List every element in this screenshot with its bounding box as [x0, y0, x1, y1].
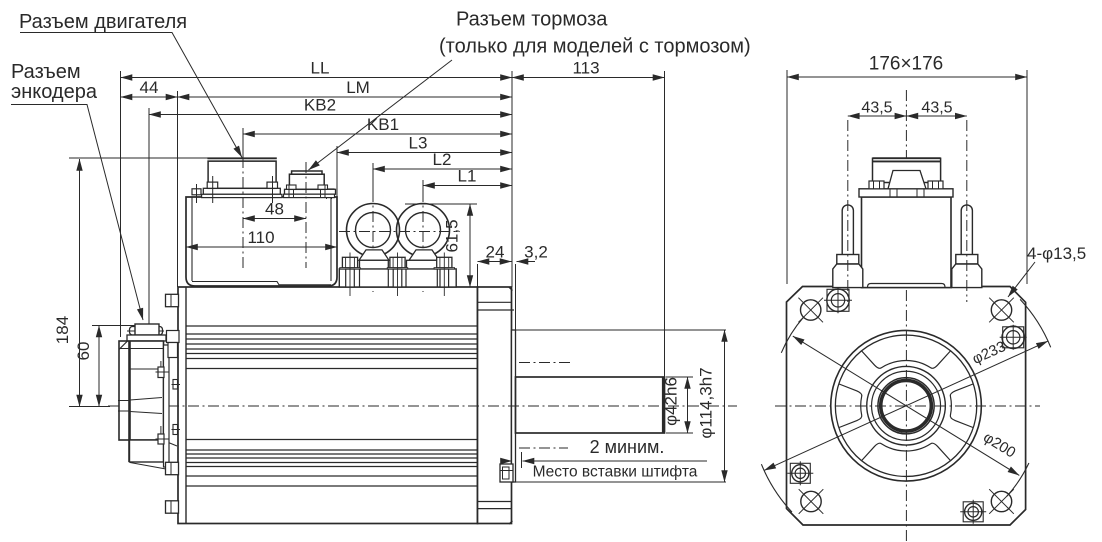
svg-text:48: 48: [265, 200, 284, 219]
svg-text:Место вставки штифта: Место вставки штифта: [533, 464, 698, 481]
svg-text:3,2: 3,2: [524, 243, 548, 262]
svg-text:2 миним.: 2 миним.: [590, 437, 665, 457]
svg-text:43,5: 43,5: [921, 100, 952, 117]
svg-text:LL: LL: [311, 59, 330, 78]
svg-text:Разъем двигателя: Разъем двигателя: [19, 11, 187, 33]
svg-text:113: 113: [572, 59, 599, 78]
svg-text:184: 184: [53, 316, 72, 344]
svg-text:4-φ13,5: 4-φ13,5: [1027, 244, 1086, 263]
svg-text:43,5: 43,5: [861, 100, 892, 117]
svg-text:Разъем: Разъем: [11, 61, 81, 83]
svg-text:61,5: 61,5: [443, 219, 462, 252]
svg-text:L2: L2: [433, 150, 452, 169]
svg-text:176×176: 176×176: [869, 54, 944, 75]
svg-text:24: 24: [486, 243, 505, 262]
svg-text:60: 60: [74, 342, 93, 361]
svg-text:44: 44: [140, 78, 159, 97]
svg-text:KB1: KB1: [367, 115, 399, 134]
svg-text:Разъем тормоза: Разъем тормоза: [456, 9, 608, 31]
svg-text:L3: L3: [409, 134, 428, 153]
svg-text:φ114,3h7: φ114,3h7: [697, 367, 716, 438]
svg-text:KB2: KB2: [304, 96, 336, 115]
svg-text:энкодера: энкодера: [11, 81, 98, 103]
svg-text:110: 110: [247, 228, 274, 247]
svg-text:(только для моделей с тормозом: (только для моделей с тормозом): [439, 36, 751, 58]
svg-text:LM: LM: [346, 78, 370, 97]
svg-text:L1: L1: [458, 167, 477, 186]
